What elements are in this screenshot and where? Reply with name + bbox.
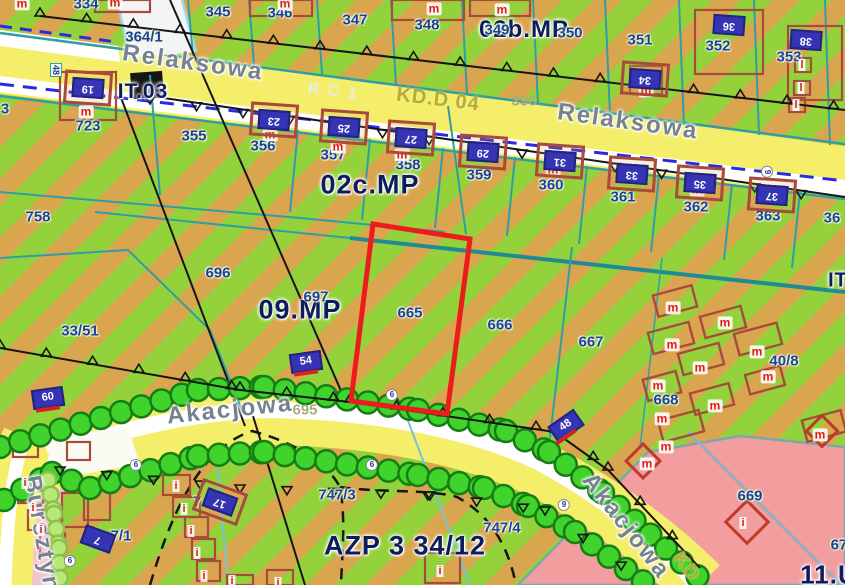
building-letter-marker: m — [427, 2, 442, 15]
building-letter-marker: m — [108, 0, 123, 10]
building-letter-marker: m — [750, 345, 765, 358]
street-relaksowa-2: Relaksowa — [556, 98, 701, 146]
building-letter-marker: m — [708, 399, 723, 412]
building-letter-marker: m — [665, 338, 680, 351]
parcel-number: 697 — [303, 289, 328, 306]
building-letter-marker: m — [718, 316, 733, 329]
parcel-number: 696 — [205, 265, 230, 282]
building-letter-marker: m — [495, 3, 510, 16]
parcel-number: 347 — [342, 12, 367, 29]
parcel-number: 348 — [414, 17, 439, 34]
address-plaque: 19 — [71, 77, 104, 99]
building-letter-marker: m — [655, 412, 670, 425]
parcel-number: 695 — [292, 402, 317, 419]
address-plaque: 29 — [466, 141, 499, 163]
building-letter-marker: m — [761, 370, 776, 383]
address-plaque: 36 — [712, 14, 745, 36]
zone-it-cut: IT — [828, 270, 845, 293]
address-plaque: 27 — [394, 127, 427, 149]
address-plaque: 35 — [683, 172, 716, 194]
zone-kdd-04: KD.D 04 — [395, 83, 481, 116]
building-letter-marker: m — [640, 457, 655, 470]
address-plaque: 34 — [628, 68, 661, 90]
parcel-number: 350 — [557, 25, 582, 42]
building-letter-marker: m — [79, 105, 94, 118]
utility-tag: 6 — [366, 459, 378, 471]
building-letter-marker: m — [693, 361, 708, 374]
building-letter-marker: i — [29, 502, 36, 514]
utility-tag: 6 — [64, 555, 76, 567]
parcel-number: 355 — [181, 128, 206, 145]
parcel-number: 668 — [653, 392, 678, 409]
building-letter-marker: i — [739, 517, 746, 529]
building-letter-marker: i — [274, 577, 281, 585]
parcel-number: 3 — [1, 101, 9, 118]
address-plaque: 38 — [789, 29, 822, 51]
zone-02c-mp: 02c.MP — [320, 170, 419, 201]
address-plaque: 25 — [327, 116, 360, 138]
building-letter-marker: m — [813, 428, 828, 441]
building-letter-marker: i — [228, 575, 235, 585]
building-letter-marker: m — [659, 440, 674, 453]
address-plaque: 37 — [755, 184, 788, 206]
building-letter-marker: i — [200, 570, 207, 582]
parcel-number: 33/51 — [61, 323, 99, 340]
parcel-number: 351 — [627, 32, 652, 49]
parcel-number: 334 — [73, 0, 98, 13]
building-letter-marker: m — [666, 301, 681, 314]
parcel-number: 67 — [831, 537, 845, 554]
parcel-number: 362 — [683, 199, 708, 216]
street-akacjowa-2: Akacjowa — [576, 467, 676, 584]
parcel-number: 364/1 — [125, 29, 163, 46]
parcel-number: 345 — [205, 4, 230, 21]
zoning-map[interactable]: 02b.MP02c.MP09.MPIT.03IT11.UKD.D 04KDR C… — [0, 0, 845, 585]
utility-tag: 6 — [386, 389, 398, 401]
parcel-number: 349 — [484, 22, 509, 39]
building-letter-marker: i — [436, 565, 443, 577]
parcel-number: 667 — [578, 334, 603, 351]
building-letter-marker: i — [21, 477, 28, 489]
parcel-number: 747/3 — [318, 487, 356, 504]
building-letter-marker: i — [187, 525, 194, 537]
parcel-number: 747/4 — [483, 520, 521, 537]
street-bursztynowa: Bursztynowa — [17, 473, 74, 585]
address-plaque: 23 — [257, 109, 290, 131]
parcel-number: 352 — [705, 38, 730, 55]
building-letter-marker: i — [180, 503, 187, 515]
address-plaque: 31 — [543, 150, 576, 172]
parcel-number: 396 — [511, 93, 536, 110]
parcel-number: 723 — [75, 118, 100, 135]
building-letter-marker: i — [172, 480, 179, 492]
parcel-number: 40/8 — [769, 353, 798, 370]
building-letter-marker: l — [792, 99, 799, 111]
building-letter-marker: i — [193, 547, 200, 559]
parcel-number: 360 — [538, 177, 563, 194]
building-letter-marker: l — [797, 82, 804, 94]
zone-azp: AZP 3 34/12 — [324, 531, 486, 562]
road-code-rc1: R C 1 — [307, 80, 360, 104]
parcel-number: 666 — [487, 317, 512, 334]
utility-tag: 9 — [558, 499, 570, 511]
building-letter-marker: m — [651, 379, 666, 392]
building-letter-marker: m — [15, 0, 30, 11]
utility-tag: 48 — [50, 63, 62, 77]
building-letter-marker: l — [798, 59, 805, 71]
parcel-number: 758 — [25, 209, 50, 226]
parcel-number: 665 — [397, 305, 422, 322]
map-labels: 02b.MP02c.MP09.MPIT.03IT11.UKD.D 04KDR C… — [0, 0, 845, 585]
zone-11-u: 11.U — [800, 560, 845, 585]
address-plaque: 33 — [615, 163, 648, 185]
zone-it-03: IT.03 — [118, 80, 169, 104]
zone-09-mp: 09.MP — [258, 295, 341, 326]
parcel-number: 669 — [737, 488, 762, 505]
building-letter-marker: m — [278, 0, 293, 11]
parcel-number: 36 — [824, 210, 841, 227]
utility-tag: 6 — [130, 459, 142, 471]
building-letter-marker: i — [37, 524, 44, 536]
street-akacjowa-1: Akacjowa — [166, 389, 295, 430]
